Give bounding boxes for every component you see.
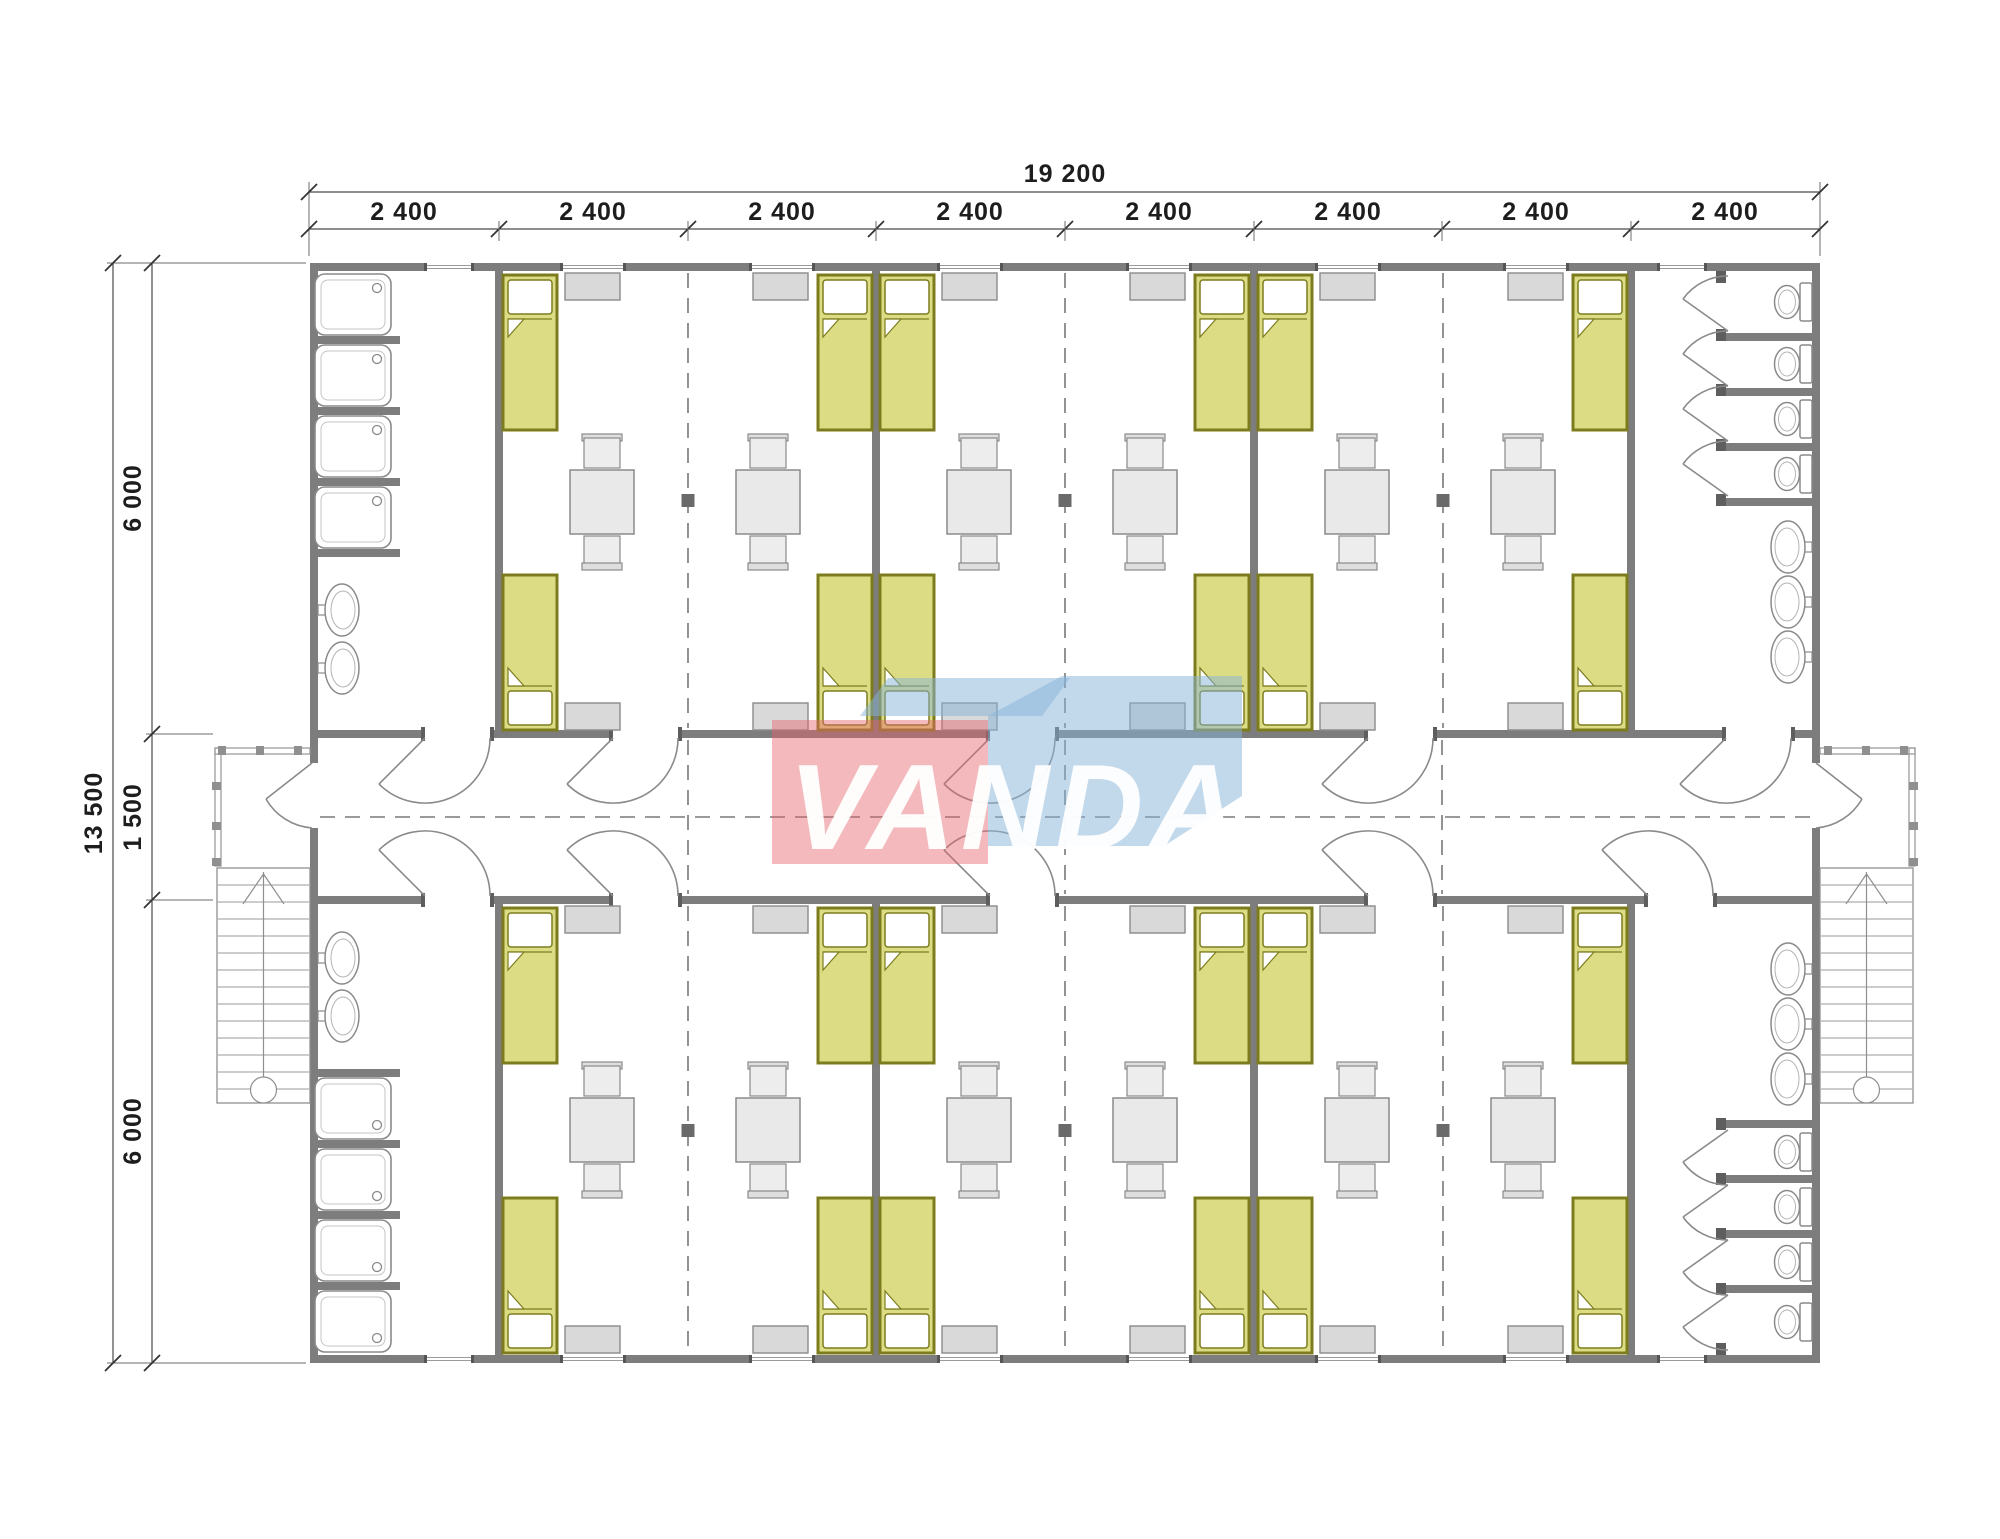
height-segment-label-3: 6 000 [119,1097,147,1165]
exit-door-right [1816,763,1862,828]
floor-plan-drawing: 19 200 2 400 2 400 2 400 2 400 2 400 2 4… [0,0,2000,1539]
porch-left [212,746,310,866]
top-dimensions: 19 200 2 400 2 400 2 400 2 400 2 400 2 4… [301,160,1828,256]
overall-height-label: 13 500 [80,772,108,854]
height-segment-label-2: 1 500 [119,783,147,851]
module-width-label-3: 2 400 [748,198,816,226]
module-width-label-4: 2 400 [936,198,1004,226]
overall-width-label: 19 200 [1024,160,1106,188]
module-extension-lines [499,221,1631,241]
module-width-label-7: 2 400 [1502,198,1570,226]
height-segment-label-1: 6 000 [119,464,147,532]
staircase-right [1820,868,1913,1103]
floor-plan-page: 19 200 2 400 2 400 2 400 2 400 2 400 2 4… [0,0,2000,1539]
module-width-label-2: 2 400 [559,198,627,226]
left-dimensions: 13 500 6 000 1 500 6 000 [80,255,306,1371]
exit-door-left [266,763,312,828]
module-width-label-8: 2 400 [1691,198,1759,226]
vanda-watermark-text: VANDA [789,739,1244,875]
porch-right [1820,746,1918,866]
staircase-left [217,868,310,1103]
module-width-label-6: 2 400 [1314,198,1382,226]
module-width-label-5: 2 400 [1125,198,1193,226]
module-width-label-1: 2 400 [370,198,438,226]
